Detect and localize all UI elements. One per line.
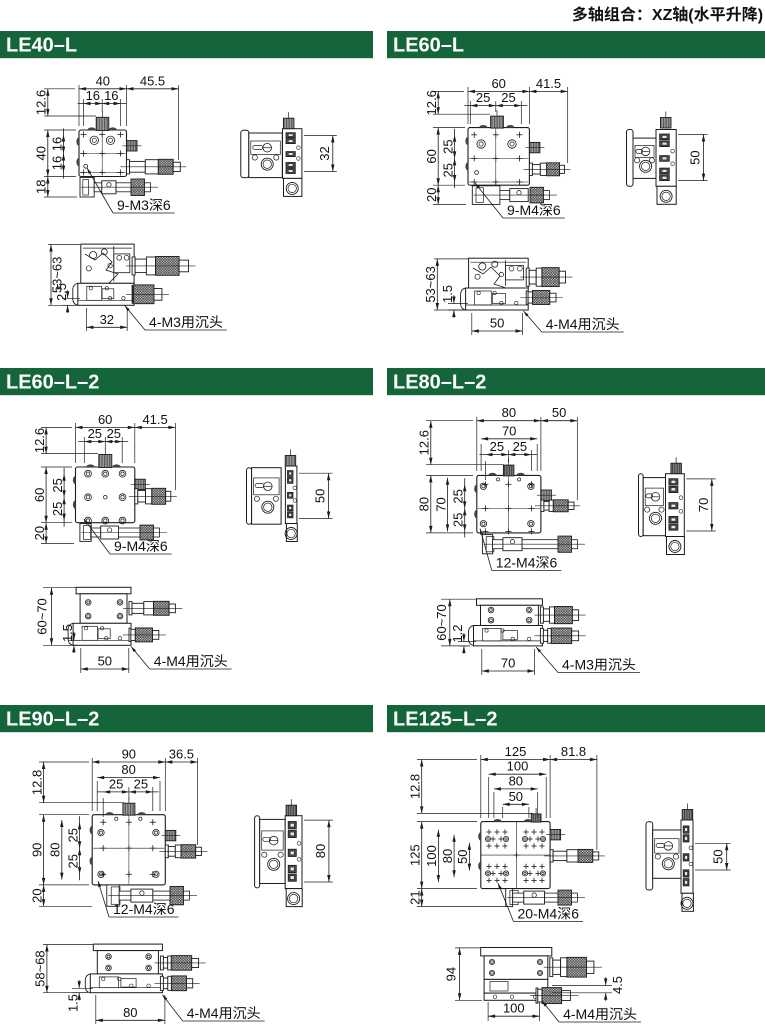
- svg-text:25: 25: [440, 139, 455, 153]
- svg-text:25: 25: [65, 854, 80, 868]
- svg-text:1.2: 1.2: [450, 624, 465, 642]
- svg-text:94: 94: [444, 967, 459, 981]
- svg-text:6: 6: [160, 538, 168, 554]
- svg-text:(: (: [688, 7, 694, 24]
- svg-text:50: 50: [455, 849, 470, 863]
- svg-text:12.8: 12.8: [408, 774, 423, 799]
- svg-text:80: 80: [417, 497, 432, 511]
- svg-text:80: 80: [121, 762, 135, 777]
- svg-text:80: 80: [509, 773, 523, 788]
- svg-text:70: 70: [696, 498, 711, 512]
- svg-text:50: 50: [688, 150, 703, 164]
- svg-text:50: 50: [711, 849, 726, 863]
- svg-text:1.5: 1.5: [440, 285, 455, 303]
- svg-text:25: 25: [134, 776, 148, 791]
- svg-text:4-M3: 4-M3: [562, 657, 594, 673]
- svg-text:53~63: 53~63: [423, 266, 438, 303]
- svg-text:100: 100: [507, 759, 529, 774]
- svg-text:4-M3: 4-M3: [149, 314, 181, 330]
- svg-text:25: 25: [476, 90, 490, 105]
- svg-text:80: 80: [502, 405, 516, 420]
- svg-text:100: 100: [503, 1001, 525, 1016]
- svg-text:25: 25: [513, 439, 527, 454]
- svg-text:50: 50: [552, 405, 566, 420]
- svg-text:50: 50: [313, 489, 328, 503]
- svg-text:): ): [758, 7, 763, 24]
- svg-text:80: 80: [48, 843, 63, 857]
- svg-text:6: 6: [163, 197, 171, 213]
- svg-text:40: 40: [34, 146, 49, 160]
- svg-text:LE40–L: LE40–L: [6, 35, 77, 57]
- svg-text:9-M4: 9-M4: [114, 538, 146, 554]
- svg-text:1.5: 1.5: [60, 624, 75, 642]
- svg-text:LE60–L–2: LE60–L–2: [6, 372, 99, 394]
- svg-text:90: 90: [122, 747, 136, 762]
- svg-text:16: 16: [49, 137, 64, 151]
- svg-text:41.5: 41.5: [142, 412, 167, 427]
- svg-text:50: 50: [490, 316, 504, 331]
- svg-text:9-M4: 9-M4: [507, 202, 539, 218]
- svg-text:4-M4: 4-M4: [546, 316, 578, 332]
- svg-text:6: 6: [550, 555, 558, 571]
- svg-text:25: 25: [501, 90, 515, 105]
- svg-text:125: 125: [408, 844, 423, 866]
- svg-text:16: 16: [86, 88, 100, 103]
- svg-text:4.5: 4.5: [610, 976, 625, 994]
- svg-text:25: 25: [107, 426, 121, 441]
- svg-text:50: 50: [509, 789, 523, 804]
- svg-text:60: 60: [491, 76, 505, 91]
- svg-text:60: 60: [424, 149, 439, 163]
- svg-text:20: 20: [424, 188, 439, 202]
- svg-text:25: 25: [50, 502, 65, 516]
- svg-text:6: 6: [167, 901, 175, 917]
- svg-text:18: 18: [34, 180, 49, 194]
- svg-text:25: 25: [451, 489, 466, 503]
- svg-text:25: 25: [50, 478, 65, 492]
- svg-text:25: 25: [88, 426, 102, 441]
- svg-text:4-M4: 4-M4: [563, 1006, 595, 1022]
- svg-text:80: 80: [440, 849, 455, 863]
- svg-text:12-M4: 12-M4: [113, 901, 153, 917]
- svg-text:100: 100: [424, 845, 439, 867]
- svg-text:70: 70: [501, 656, 515, 671]
- svg-text:16: 16: [104, 88, 118, 103]
- svg-text:70: 70: [502, 423, 516, 438]
- svg-text:12.6: 12.6: [417, 430, 432, 455]
- svg-text:12.8: 12.8: [29, 770, 44, 795]
- svg-text:12-M4: 12-M4: [496, 555, 536, 571]
- svg-text:16: 16: [49, 156, 64, 170]
- svg-text:20: 20: [32, 526, 47, 540]
- svg-text:LE125–L–2: LE125–L–2: [393, 709, 498, 731]
- svg-text:41.5: 41.5: [536, 76, 561, 91]
- svg-text:60: 60: [98, 412, 112, 427]
- svg-text:20: 20: [29, 888, 44, 902]
- svg-text:40: 40: [96, 73, 110, 88]
- svg-text:9-M3: 9-M3: [117, 197, 149, 213]
- svg-text:90: 90: [29, 843, 44, 857]
- svg-text:LE60–L: LE60–L: [393, 35, 464, 57]
- svg-text:60: 60: [32, 488, 47, 502]
- svg-text:6: 6: [553, 202, 561, 218]
- svg-text:36.5: 36.5: [169, 747, 194, 762]
- svg-text:20-M4: 20-M4: [518, 906, 558, 922]
- svg-text:80: 80: [123, 1005, 137, 1020]
- svg-text:60~70: 60~70: [35, 598, 50, 635]
- svg-text:32: 32: [317, 146, 332, 160]
- svg-text:58~68: 58~68: [32, 950, 47, 987]
- svg-text:XZ: XZ: [652, 7, 673, 24]
- svg-text:25: 25: [65, 828, 80, 842]
- svg-text:60~70: 60~70: [434, 604, 449, 641]
- svg-text:125: 125: [505, 744, 527, 759]
- svg-text:25: 25: [451, 513, 466, 527]
- svg-text:2.5: 2.5: [54, 283, 69, 301]
- svg-text:45.5: 45.5: [140, 73, 165, 88]
- svg-text:70: 70: [433, 497, 448, 511]
- svg-text:LE90–L–2: LE90–L–2: [6, 709, 99, 731]
- svg-text:6: 6: [571, 906, 579, 922]
- svg-text:81.8: 81.8: [561, 744, 586, 759]
- svg-text:25: 25: [109, 776, 123, 791]
- svg-text:12.6: 12.6: [424, 90, 439, 115]
- svg-text:21: 21: [408, 890, 423, 904]
- svg-text:12.6: 12.6: [34, 90, 49, 115]
- svg-text:25: 25: [490, 439, 504, 454]
- svg-text:12.6: 12.6: [32, 428, 47, 453]
- svg-text:50: 50: [98, 654, 112, 669]
- svg-text:25: 25: [440, 163, 455, 177]
- svg-text:4-M4: 4-M4: [154, 653, 186, 669]
- svg-text:32: 32: [100, 312, 114, 327]
- svg-text:1.5: 1.5: [66, 994, 81, 1012]
- svg-text:LE80–L–2: LE80–L–2: [393, 372, 486, 394]
- svg-text:80: 80: [313, 844, 328, 858]
- svg-text:4-M4: 4-M4: [187, 1005, 219, 1021]
